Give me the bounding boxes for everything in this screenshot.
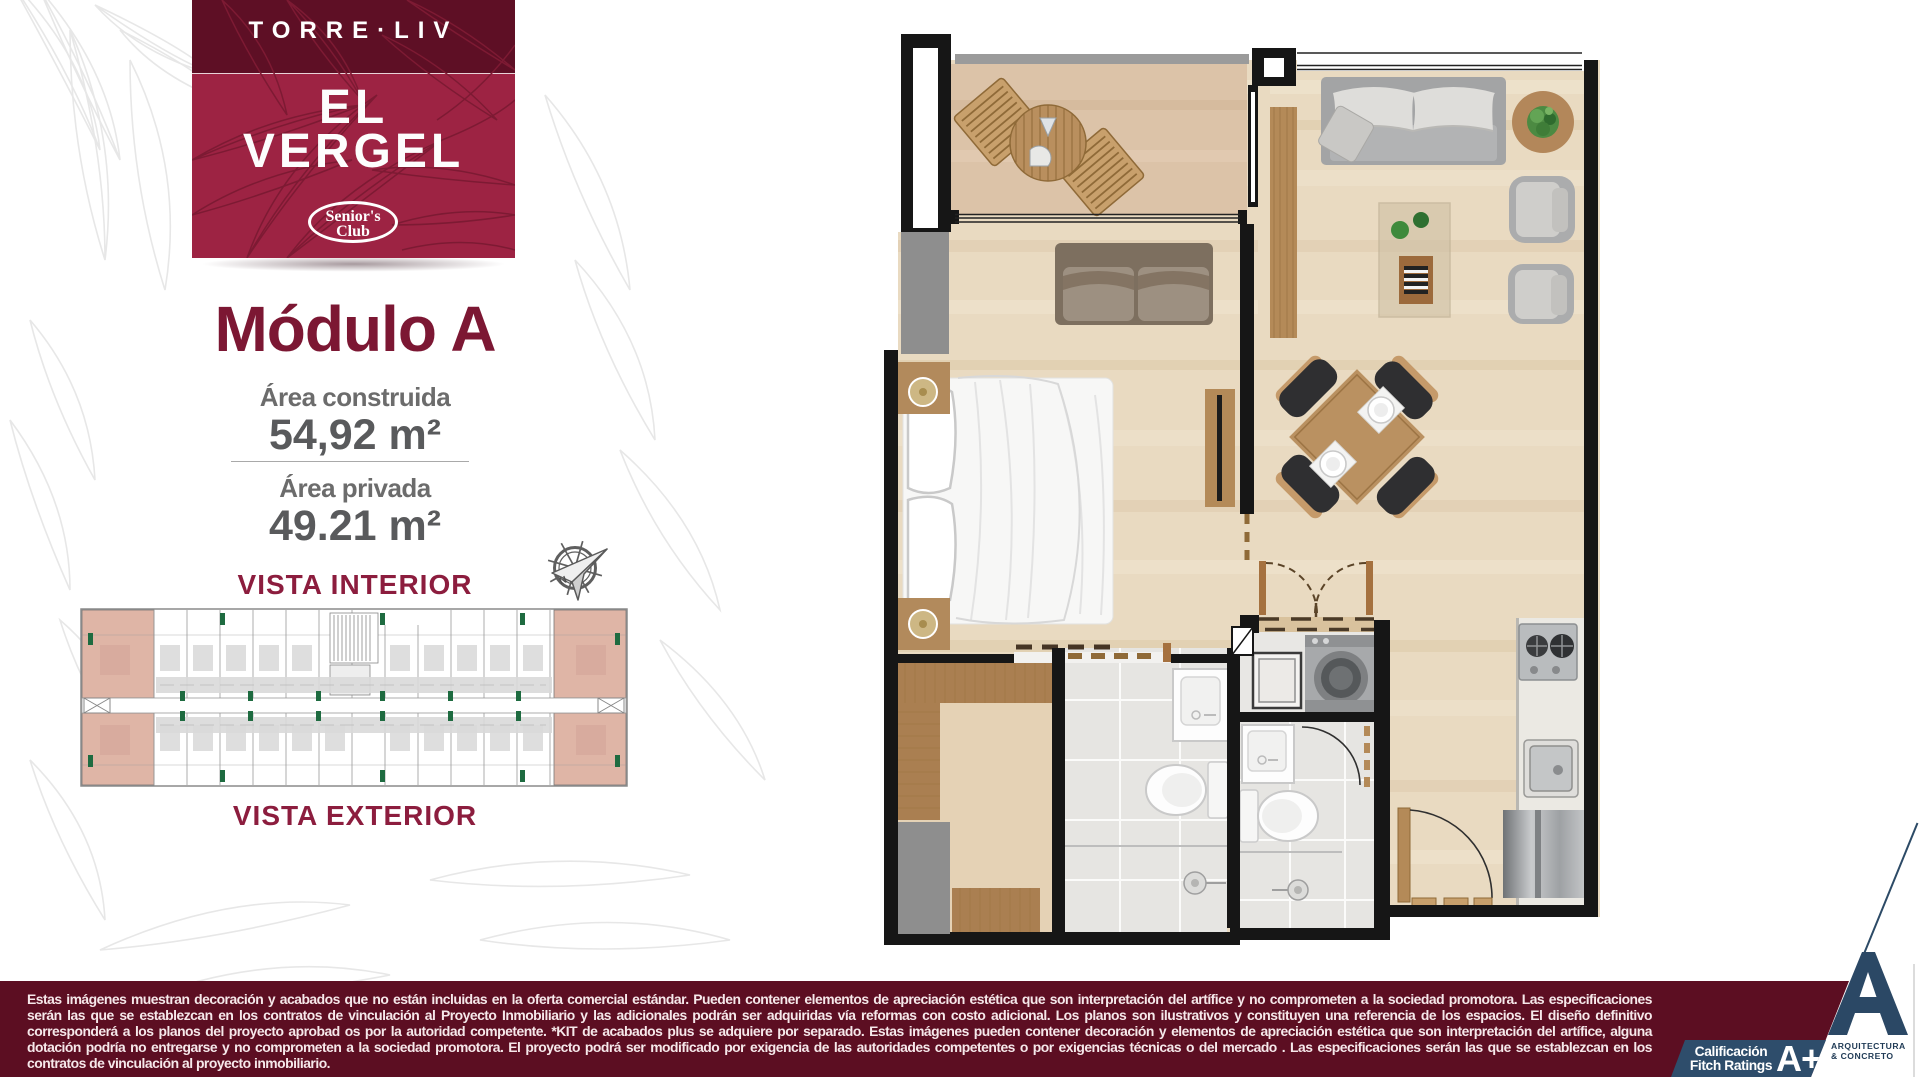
svg-text:& CONCRETO: & CONCRETO: [1831, 1051, 1894, 1061]
svg-text:ARQUITECTURA: ARQUITECTURA: [1831, 1041, 1906, 1051]
